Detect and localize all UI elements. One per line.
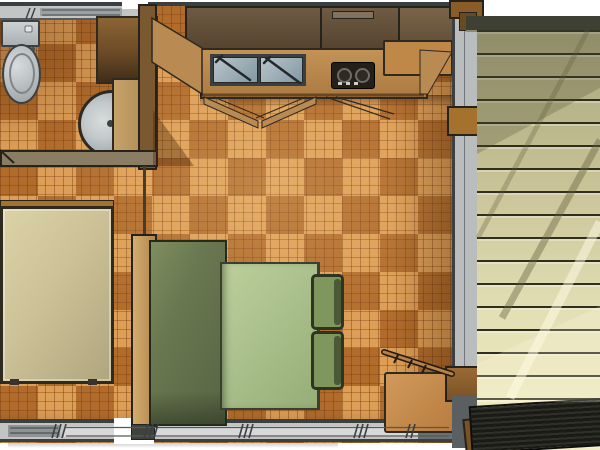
toilet-seat: [9, 53, 35, 94]
dining-table: [220, 262, 320, 410]
bathroom-partition-wall: [138, 4, 157, 170]
bed: [0, 206, 114, 384]
stove: [331, 62, 375, 89]
kitchen-upper-cabinet: [185, 6, 404, 52]
sink-basin-left: [213, 57, 258, 83]
bed-foot: [10, 379, 19, 385]
stove-knobs: [338, 82, 342, 85]
stove-burner: [355, 68, 370, 83]
deck-planks: [477, 30, 600, 450]
doormat: [469, 398, 600, 450]
stove-burner: [337, 68, 352, 83]
bottom-wall-shadow: [8, 443, 338, 448]
top-window-pane: [40, 8, 122, 16]
bed-foot: [88, 379, 97, 385]
counter-box: [383, 40, 453, 76]
bottom-window-pane-left: [8, 425, 60, 437]
floorplan-render: [0, 0, 600, 450]
bottom-wall-outer-edge: [0, 439, 453, 442]
chair: [311, 274, 344, 330]
kitchen-sink: [210, 54, 306, 86]
bench-seat: [149, 240, 227, 426]
sink-basin-right: [260, 57, 303, 83]
toilet-tank: [1, 20, 40, 47]
right-wall-wood-block: [447, 106, 479, 136]
cabinet-vent: [332, 11, 374, 19]
partition-post-line: [143, 166, 146, 236]
chair: [311, 331, 344, 390]
toilet: [1, 20, 41, 104]
bathroom-partition-rail: [0, 150, 158, 167]
bench-post-foot: [131, 424, 155, 440]
